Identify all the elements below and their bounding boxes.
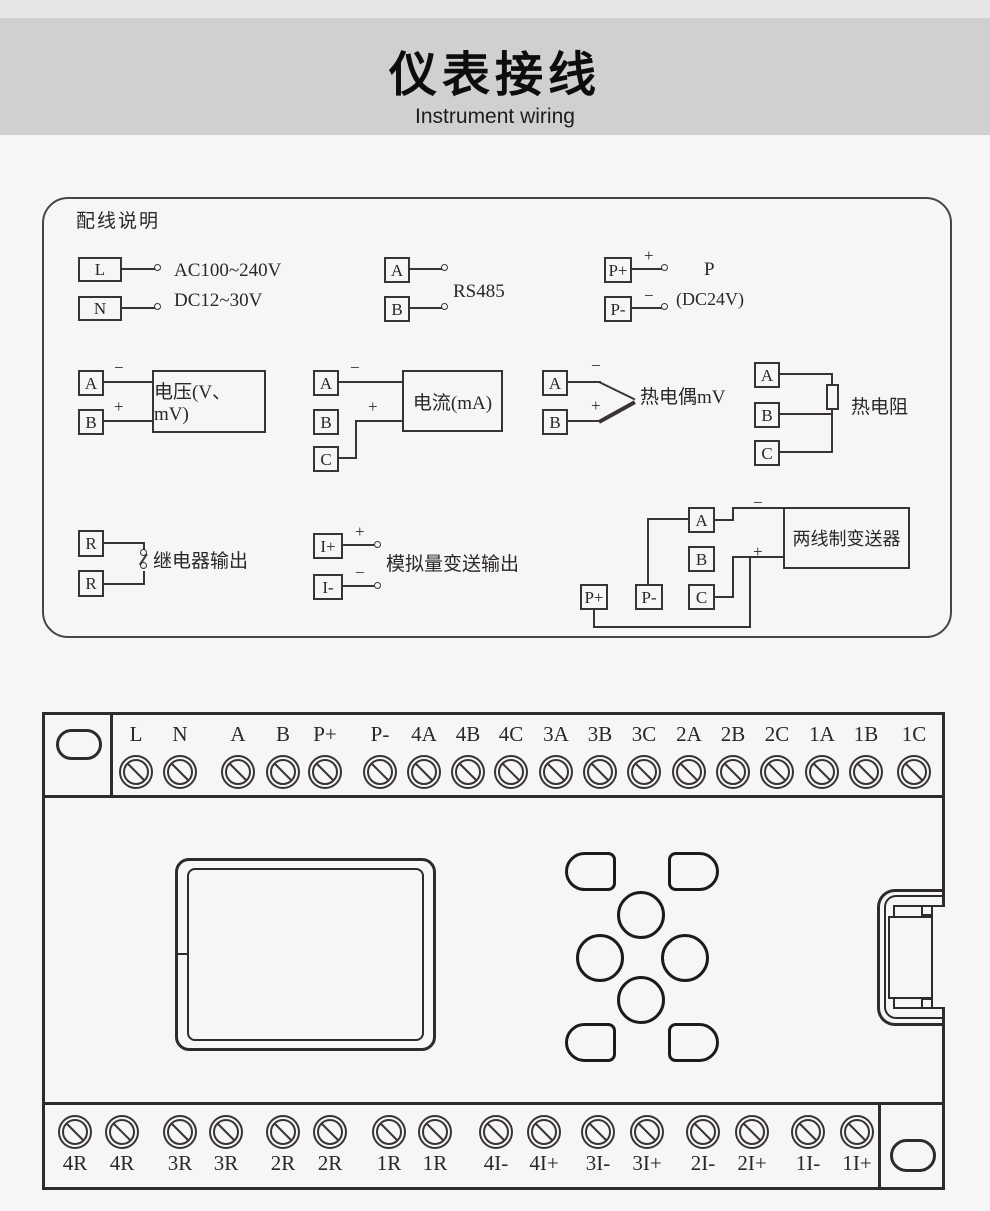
terminal-box-A: A — [313, 370, 339, 396]
thermocouple-label: 热电偶mV — [640, 387, 726, 410]
transmitter-box: 两线制变送器 — [783, 507, 910, 569]
connection-node — [374, 582, 381, 589]
wire — [343, 585, 374, 587]
wire — [343, 544, 374, 546]
screw-terminal-icon — [451, 755, 485, 789]
polarity-sign: − — [753, 494, 763, 511]
dc24-label-v: (DC24V) — [676, 289, 744, 311]
terminal-box-B: B — [313, 409, 339, 435]
wire — [122, 307, 155, 309]
connection-node — [661, 264, 668, 271]
terminal-box-A: A — [688, 507, 715, 533]
bezel-notch — [175, 953, 187, 955]
screw-terminal-icon — [363, 755, 397, 789]
terminal-box-R: R — [78, 570, 104, 597]
polarity-sign: + — [591, 397, 601, 414]
terminal-label: 1I+ — [832, 1153, 882, 1174]
terminal-label: 2I- — [678, 1153, 728, 1174]
header-banner: 仪表接线 Instrument wiring — [0, 18, 990, 135]
wire — [568, 420, 601, 422]
connector-tab — [921, 998, 933, 1009]
terminal-label: 3C — [619, 724, 669, 745]
wire — [104, 583, 145, 585]
screw-terminal-icon — [308, 755, 342, 789]
terminal-label: 3R — [201, 1153, 251, 1174]
screw-terminal-icon — [479, 1115, 513, 1149]
terminal-box-B: B — [78, 409, 104, 435]
power-rating-2: DC12~30V — [174, 290, 262, 313]
wire — [339, 381, 402, 383]
screw-terminal-icon — [58, 1115, 92, 1149]
connection-node — [154, 264, 161, 271]
wire — [568, 381, 601, 383]
screw-terminal-icon — [407, 755, 441, 789]
screw-terminal-icon — [805, 755, 839, 789]
polarity-sign: + — [114, 398, 124, 415]
terminal-label: 1A — [797, 724, 847, 745]
screw-terminal-icon — [760, 755, 794, 789]
connection-node — [661, 303, 668, 310]
terminal-label: 2R — [258, 1153, 308, 1174]
divider — [878, 1105, 881, 1190]
terminal-label: 1I- — [783, 1153, 833, 1174]
current-box: 电流(mA) — [402, 370, 503, 432]
screw-terminal-icon — [527, 1115, 561, 1149]
terminal-label: 1R — [364, 1153, 414, 1174]
analog-output-label: 模拟量变送输出 — [386, 554, 519, 577]
terminal-label: 4R — [50, 1153, 100, 1174]
terminal-label: A — [213, 724, 263, 745]
terminal-label: P- — [355, 724, 405, 745]
page-subtitle: Instrument wiring — [0, 105, 990, 129]
wire — [104, 381, 152, 383]
terminal-box-R: R — [78, 530, 104, 557]
wire — [647, 518, 689, 520]
polarity-sign: + — [644, 247, 654, 264]
terminal-label: 4I- — [471, 1153, 521, 1174]
top-strip — [0, 0, 990, 18]
button-down — [617, 976, 665, 1024]
wire — [593, 626, 751, 628]
terminal-label: N — [155, 724, 205, 745]
screw-terminal-icon — [221, 755, 255, 789]
screw-terminal-icon — [627, 755, 661, 789]
polarity-sign: − — [591, 357, 601, 374]
terminal-box-Pplus: P+ — [604, 257, 632, 283]
wire — [780, 451, 832, 453]
terminal-label: 1R — [410, 1153, 460, 1174]
screw-terminal-icon — [897, 755, 931, 789]
screw-terminal-icon — [266, 755, 300, 789]
terminal-box-Iminus: I- — [313, 574, 343, 600]
button-top-right — [668, 852, 719, 891]
button-top-left — [565, 852, 616, 891]
polarity-sign: − — [114, 359, 124, 376]
terminal-label: 1B — [841, 724, 891, 745]
screw-terminal-icon — [372, 1115, 406, 1149]
terminal-label: 3I- — [573, 1153, 623, 1174]
terminal-box-N: N — [78, 296, 122, 321]
screw-terminal-icon — [849, 755, 883, 789]
terminal-box-B: B — [542, 409, 568, 435]
terminal-box-Pplus: P+ — [580, 584, 608, 610]
terminal-box-B: B — [384, 296, 410, 322]
screw-terminal-icon — [494, 755, 528, 789]
terminal-label: 2I+ — [727, 1153, 777, 1174]
wire — [732, 556, 734, 598]
wire — [104, 542, 145, 544]
terminal-box-B: B — [754, 402, 780, 428]
page-title: 仪表接线 — [0, 35, 990, 105]
screw-terminal-icon — [313, 1115, 347, 1149]
power-rating-1: AC100~240V — [174, 260, 281, 283]
terminal-label: 1C — [889, 724, 939, 745]
terminal-label: 2A — [664, 724, 714, 745]
screw-terminal-icon — [105, 1115, 139, 1149]
terminal-label: 4R — [97, 1153, 147, 1174]
screw-terminal-icon — [630, 1115, 664, 1149]
terminal-label: 4I+ — [519, 1153, 569, 1174]
wire — [104, 420, 152, 422]
divider — [45, 1102, 942, 1105]
screw-terminal-icon — [163, 1115, 197, 1149]
screw-terminal-icon — [418, 1115, 452, 1149]
polarity-sign: + — [355, 523, 365, 540]
button-right — [661, 934, 709, 982]
screw-terminal-icon — [686, 1115, 720, 1149]
screw-terminal-icon — [581, 1115, 615, 1149]
rs485-label: RS485 — [453, 281, 505, 304]
terminal-box-A: A — [754, 362, 780, 388]
polarity-sign: − — [355, 564, 365, 581]
relay-label: 继电器输出 — [153, 551, 248, 574]
wire — [632, 307, 662, 309]
resistor-symbol — [826, 384, 839, 410]
side-connector-pin-area — [888, 916, 933, 999]
terminal-box-C: C — [754, 440, 780, 466]
screw-terminal-icon — [539, 755, 573, 789]
voltage-box: 电压(V、mV) — [152, 370, 266, 433]
screw-terminal-icon — [735, 1115, 769, 1149]
polarity-sign: − — [350, 359, 360, 376]
divider — [45, 795, 942, 798]
terminal-box-Pminus: P- — [604, 296, 632, 322]
terminal-box-L: L — [78, 257, 122, 282]
terminal-box-A: A — [542, 370, 568, 396]
terminal-label: 4C — [486, 724, 536, 745]
rtd-label: 热电阻 — [851, 397, 908, 420]
connection-node — [374, 541, 381, 548]
wire — [355, 420, 402, 422]
wire — [122, 268, 155, 270]
screw-terminal-icon — [840, 1115, 874, 1149]
screw-terminal-icon — [209, 1115, 243, 1149]
terminal-label: 4A — [399, 724, 449, 745]
screw-terminal-icon — [791, 1115, 825, 1149]
terminal-box-C: C — [688, 584, 715, 610]
button-bottom-left — [565, 1023, 616, 1062]
dc24-label-p: P — [704, 259, 715, 282]
wire — [143, 571, 145, 585]
terminal-label: P+ — [300, 724, 350, 745]
polarity-sign: + — [753, 543, 763, 560]
wire — [632, 268, 662, 270]
wire — [780, 373, 832, 375]
terminal-box-Iplus: I+ — [313, 533, 343, 559]
wire — [410, 307, 442, 309]
wire — [732, 508, 734, 521]
terminal-label: L — [111, 724, 161, 745]
screw-terminal-icon — [716, 755, 750, 789]
terminal-label: 2C — [752, 724, 802, 745]
polarity-sign: + — [368, 398, 378, 415]
wire — [749, 557, 751, 628]
display-screen — [187, 868, 424, 1041]
mounting-slot — [890, 1139, 936, 1172]
terminal-label: 3R — [155, 1153, 205, 1174]
mounting-slot — [56, 729, 102, 760]
wire — [647, 518, 649, 584]
wire — [780, 413, 832, 415]
terminal-box-C: C — [313, 446, 339, 472]
terminal-label: 3A — [531, 724, 581, 745]
screw-terminal-icon — [672, 755, 706, 789]
connection-node — [441, 264, 448, 271]
terminal-label: 3B — [575, 724, 625, 745]
terminal-box-B: B — [688, 546, 715, 572]
terminal-label: 2B — [708, 724, 758, 745]
connector-tab — [921, 905, 933, 916]
connection-node — [154, 303, 161, 310]
button-bottom-right — [668, 1023, 719, 1062]
screw-terminal-icon — [583, 755, 617, 789]
connection-node — [441, 303, 448, 310]
panel-title: 配线说明 — [76, 206, 160, 233]
terminal-box-Pminus: P- — [635, 584, 663, 610]
button-left — [576, 934, 624, 982]
terminal-box-A: A — [78, 370, 104, 396]
terminal-label: 2R — [305, 1153, 355, 1174]
screw-terminal-icon — [266, 1115, 300, 1149]
polarity-sign: − — [644, 287, 654, 304]
wire — [410, 268, 442, 270]
screw-terminal-icon — [119, 755, 153, 789]
wire — [355, 420, 357, 459]
instrument-wiring-page: 仪表接线 Instrument wiring 配线说明 L N AC100~24… — [0, 0, 990, 1211]
terminal-label: 3I+ — [622, 1153, 672, 1174]
terminal-box-A: A — [384, 257, 410, 283]
screw-terminal-icon — [163, 755, 197, 789]
button-up — [617, 891, 665, 939]
